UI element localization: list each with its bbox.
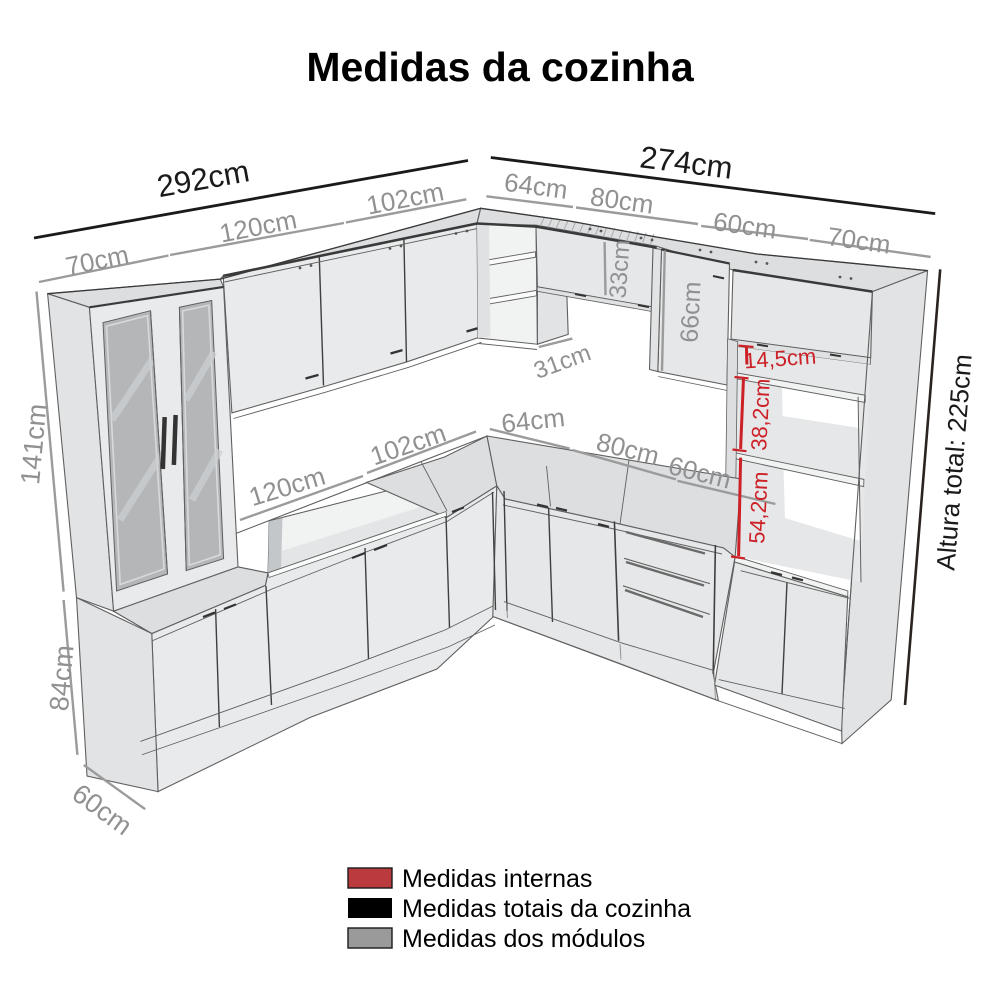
svg-text:33cm: 33cm — [605, 239, 636, 299]
svg-text:66cm: 66cm — [675, 281, 706, 344]
svg-text:14,5cm: 14,5cm — [743, 344, 817, 374]
svg-text:84cm: 84cm — [44, 644, 80, 712]
svg-text:Medidas totais da cozinha: Medidas totais da cozinha — [402, 895, 691, 923]
svg-text:Medidas internas: Medidas internas — [402, 865, 592, 893]
svg-text:Medidas da cozinha: Medidas da cozinha — [306, 44, 694, 90]
svg-text:38,2cm: 38,2cm — [746, 378, 775, 451]
svg-text:54,2cm: 54,2cm — [744, 471, 773, 544]
svg-text:Medidas dos módulos: Medidas dos módulos — [402, 925, 645, 953]
